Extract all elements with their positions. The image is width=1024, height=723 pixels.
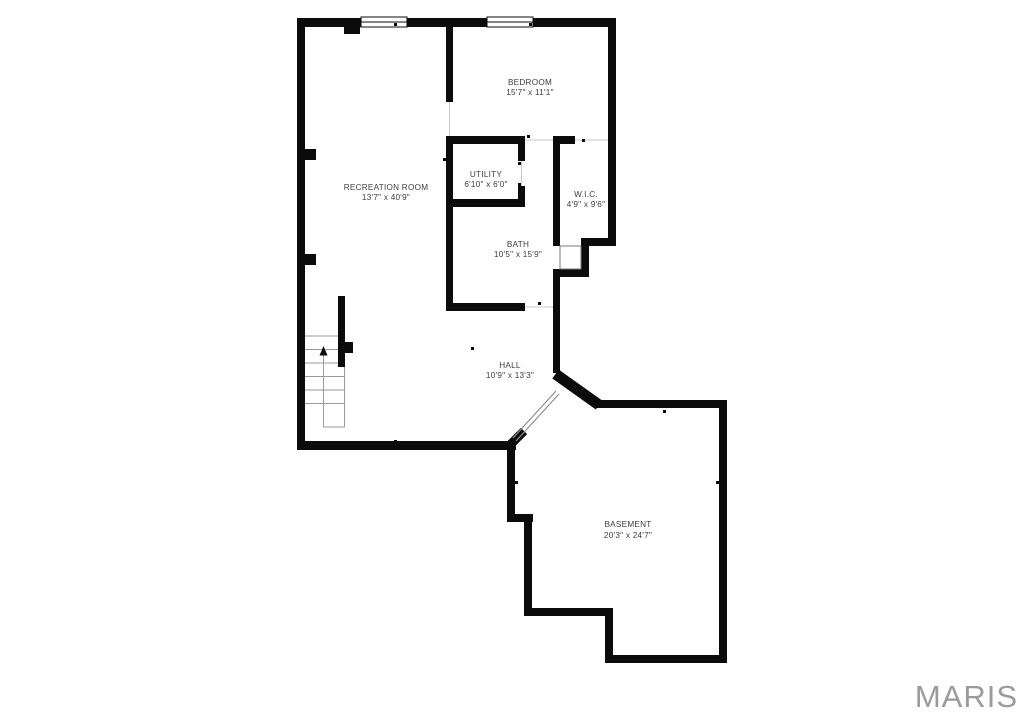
room-label-recreation: RECREATION ROOM <box>344 183 429 192</box>
room-label-utility: UTILITY <box>470 170 503 179</box>
floor-plan-canvas: RECREATION ROOM 13'7" x 40'9" BEDROOM 15… <box>0 0 1024 723</box>
dimension-tick <box>443 158 446 161</box>
dimension-tick <box>527 135 530 138</box>
wall-bath-bottom <box>446 303 525 311</box>
wall-left-nub-1 <box>305 149 316 160</box>
stair-up-arrow-icon <box>320 346 328 356</box>
room-dims-utility: 6'10" x 6'0" <box>464 180 507 189</box>
dimension-tick <box>477 308 480 311</box>
dimension-tick <box>394 440 397 443</box>
floor-plan: RECREATION ROOM 13'7" x 40'9" BEDROOM 15… <box>0 0 1024 723</box>
wall-left-nub-2 <box>305 254 316 265</box>
wall-chimney-block <box>344 18 360 34</box>
room-label-hall: HALL <box>499 361 521 370</box>
room-dims-bedroom: 15'7" x 11'1" <box>506 88 554 97</box>
wall-hall-right <box>553 269 560 373</box>
wall-wic-left <box>553 136 560 246</box>
wall-divider-mid <box>446 136 453 308</box>
wall-basement-step-v2 <box>524 514 532 616</box>
door-swing-basement-1 <box>513 391 556 438</box>
dimension-tick <box>582 139 585 142</box>
wall-basement-top <box>594 400 727 408</box>
maris-watermark: MARIS <box>915 679 1018 715</box>
dimension-tick <box>518 183 521 186</box>
room-label-bath: BATH <box>507 240 529 249</box>
room-dims-hall: 10'9" x 13'3" <box>486 371 534 380</box>
wall-basement-right <box>719 400 727 663</box>
room-label-basement: BASEMENT <box>604 520 651 529</box>
door-swing-basement-2 <box>516 394 559 441</box>
room-dims-bath: 10'5" x 15'9" <box>494 250 542 259</box>
dimension-tick <box>663 655 666 658</box>
room-dims-wic: 4'9" x 9'6" <box>567 200 606 209</box>
dimension-tick <box>471 347 474 350</box>
dimension-tick <box>538 302 541 305</box>
wall-basement-left-lower <box>605 608 613 663</box>
wall-basement-step-v1 <box>507 441 515 522</box>
door-symbol-side <box>560 246 581 269</box>
wall-right-upper <box>608 18 616 245</box>
dimension-tick <box>553 348 556 351</box>
wall-utility-right-a <box>518 136 525 161</box>
wall-utility-bottom <box>446 199 525 207</box>
wall-utility-top <box>446 136 525 144</box>
wall-stair-nub <box>345 342 353 353</box>
dimension-tick <box>716 481 719 484</box>
wall-left <box>297 18 305 450</box>
room-label-wic: W.I.C. <box>574 190 598 199</box>
wall-diagonal-hall-basement <box>556 374 600 405</box>
dimension-tick <box>515 481 518 484</box>
dimension-tick <box>518 162 521 165</box>
wall-divider-top <box>446 18 453 102</box>
room-dims-recreation: 13'7" x 40'9" <box>362 193 410 202</box>
wall-hall-bottom <box>297 441 516 450</box>
dimension-tick <box>529 23 532 26</box>
wall-basement-step-h2 <box>524 608 613 616</box>
room-label-bedroom: BEDROOM <box>508 78 552 87</box>
dimension-tick <box>663 410 666 413</box>
room-dims-basement: 20'3" x 24'7" <box>604 531 652 540</box>
walls <box>297 18 727 663</box>
dimension-tick <box>482 140 485 143</box>
wall-stair <box>338 296 345 367</box>
dimension-tick <box>583 241 586 244</box>
dimension-tick <box>394 23 397 26</box>
